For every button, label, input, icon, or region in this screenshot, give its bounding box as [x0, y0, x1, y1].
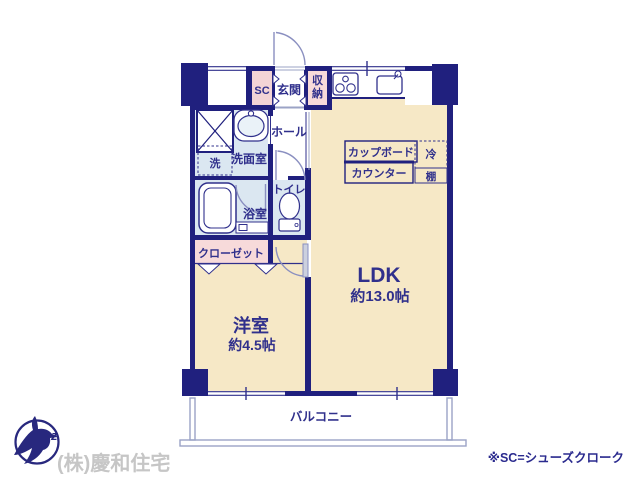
label-washroom: 洗面室 [231, 151, 267, 166]
label-western-room: 洋室 [233, 315, 269, 336]
label-western-room-size: 約4.5帖 [228, 337, 275, 353]
entrance-door [274, 32, 305, 65]
wall-western-ldk-divider [305, 277, 311, 391]
balcony-right-rail [447, 398, 452, 440]
label-bathroom: 浴室 [243, 206, 267, 221]
label-cupboard: カップボード [348, 145, 414, 159]
pillar-bottom-left [182, 369, 208, 396]
logo-letter: z [50, 428, 58, 443]
floor-plan-page: SC 玄関 収 納 ホール 洗 洗面室 浴室 トイレ クローゼット カップボード… [0, 0, 640, 480]
stove-icon [333, 73, 358, 95]
window-top-left [207, 66, 248, 71]
label-storage-char2: 納 [312, 86, 323, 100]
label-toilet: トイレ [273, 183, 306, 196]
balcony-left-rail [190, 398, 195, 440]
wall-right [447, 66, 453, 395]
washbasin-icon [234, 110, 268, 141]
kitchen-counter-edge [332, 97, 405, 99]
label-storage-char1: 収 [312, 74, 324, 87]
label-closet: クローゼット [198, 246, 264, 260]
label-ldk-size: 約13.0帖 [350, 287, 409, 305]
pipe-shaft-icon [197, 110, 233, 152]
pillar-top-right [432, 64, 458, 105]
label-hall: ホール [271, 125, 307, 139]
toilet-icon [279, 193, 300, 231]
company-logo: z [14, 416, 59, 464]
company-name: (株)慶和住宅 [57, 451, 170, 475]
label-fridge: 冷 [426, 147, 437, 161]
label-washer: 洗 [210, 156, 221, 170]
balcony-bottom-rail [180, 440, 466, 446]
room-hall [273, 110, 305, 176]
label-ldk: LDK [357, 264, 400, 287]
label-shelf: 棚 [426, 170, 437, 183]
kitchen-band-right [405, 71, 433, 105]
label-entrance: 玄関 [277, 82, 301, 97]
label-balcony: バルコニー [290, 410, 352, 424]
floor-plan-drawing: SC 玄関 収 納 ホール 洗 洗面室 浴室 トイレ クローゼット カップボード… [0, 0, 640, 480]
sc-footnote: ※SC=シューズクローク [488, 450, 624, 465]
wall-left [190, 66, 195, 395]
entrance-threshold [275, 66, 305, 71]
label-counter: カウンター [352, 167, 407, 180]
pillar-top-left [181, 63, 208, 106]
label-shoe-closet: SC [254, 85, 269, 97]
pillar-bottom-right [433, 369, 458, 396]
